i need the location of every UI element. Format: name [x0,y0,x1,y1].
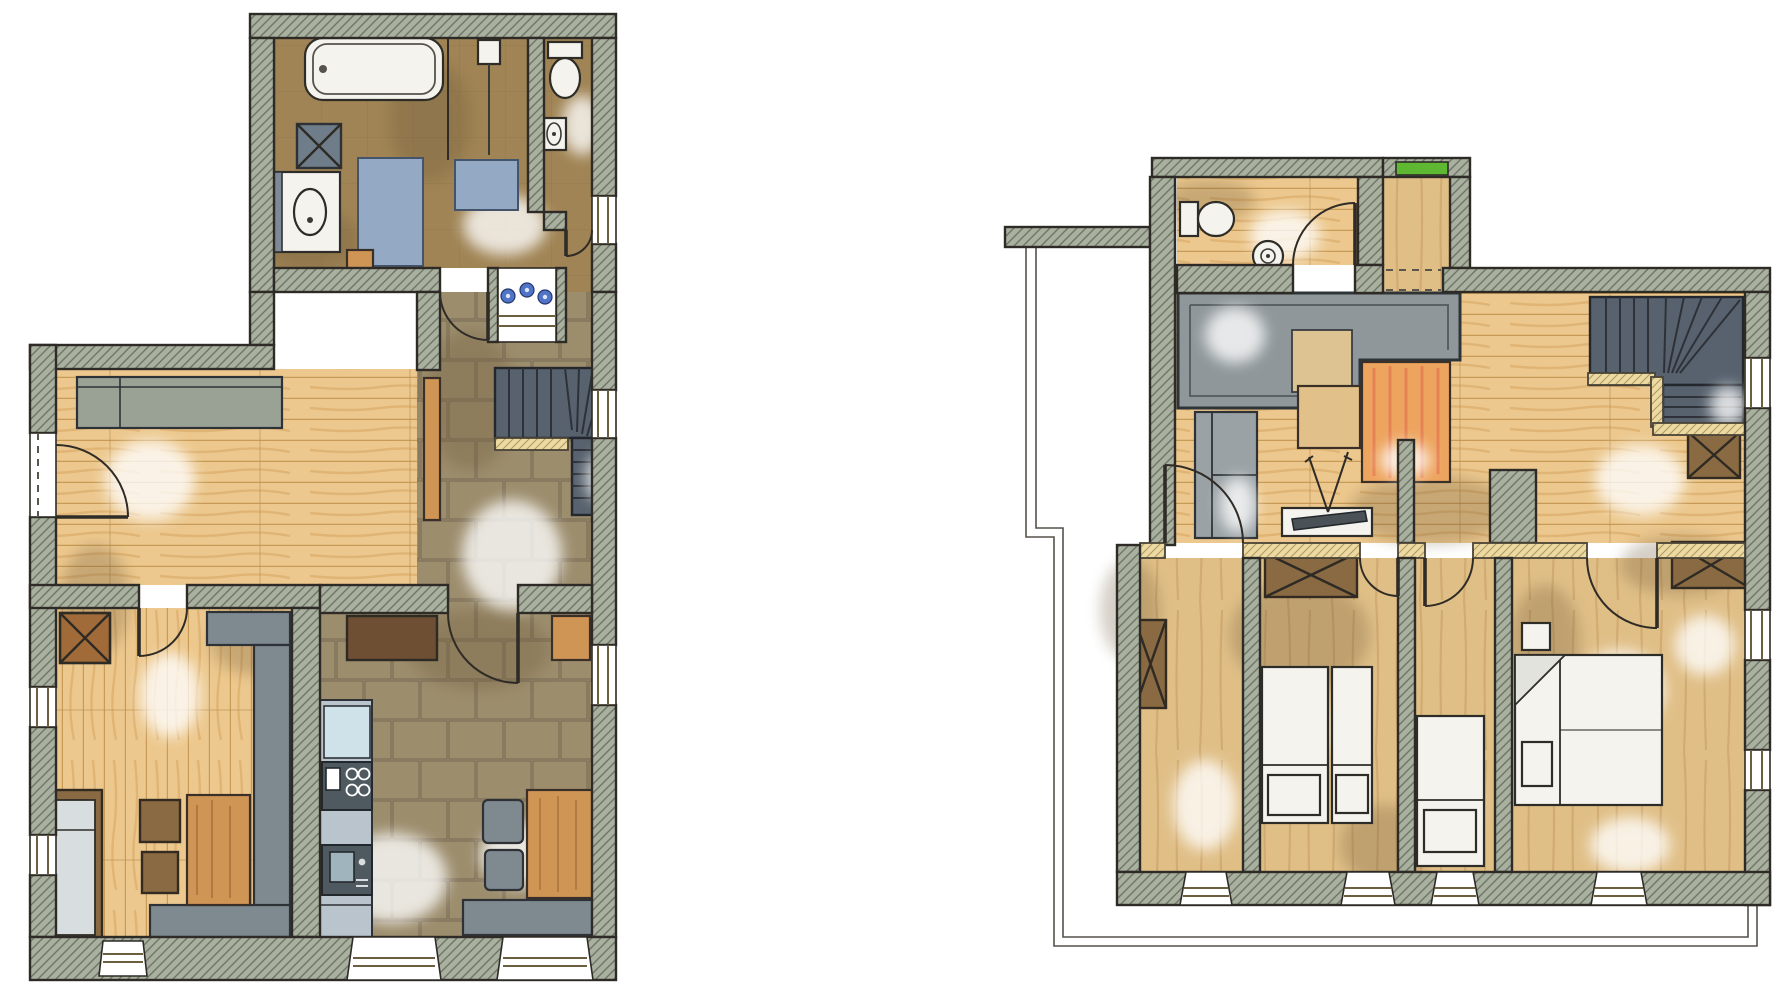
splayed-window [99,941,147,976]
toilet [548,42,582,98]
nightstand [1522,623,1550,650]
stube-stool [142,852,178,893]
kitchen-cabinet [347,616,437,660]
wall-bench [77,377,282,428]
kitchen-counter [320,700,372,937]
corridor-floor [1383,177,1450,293]
wardrobe [1688,432,1740,478]
splayed-window [1180,872,1232,905]
hand-basin [544,118,566,150]
tiled-stove [60,613,110,663]
refrigerator [552,616,590,660]
stube-table [187,795,250,905]
cooktop-stove [322,762,372,810]
twin-bed [1332,667,1372,823]
floor-plan-sheet [0,0,1787,994]
window [30,687,56,727]
kitchen-sink [322,845,372,895]
eaves-wall-stub [1005,227,1150,247]
dining-bench [463,900,595,935]
splayed-window [1591,872,1647,905]
entrance-opening [30,433,56,517]
window [592,196,616,244]
green-skylight [1396,162,1448,175]
dining-chair [485,850,523,890]
stube-stool [140,800,180,842]
stube-bench-bottom [150,905,290,937]
splayed-window [497,937,593,980]
splayed-window [347,937,441,980]
bathtub [305,38,443,100]
toilet [1180,202,1234,236]
plan-ground-floor [30,14,616,980]
window [1745,750,1770,790]
side-table [1298,386,1360,448]
vanity-washbasin [268,172,340,252]
stube-bench-right [254,645,290,937]
single-bed [1417,716,1484,866]
splayed-window [1341,872,1395,905]
splayed-window [1431,872,1479,905]
window [30,835,56,875]
wardrobe [1265,553,1357,597]
plan-upper-floor [1005,158,1770,946]
stube-bench-top [207,612,290,645]
window [1745,610,1770,660]
window [592,645,616,705]
dining-table [527,790,595,898]
open-door-leaf [424,378,440,520]
window [592,390,616,438]
flower-window [498,268,556,342]
floor-plan-drawing [0,0,1787,994]
dining-chair [483,800,523,843]
nightstand [1522,742,1552,786]
bath-mat-small [455,160,518,210]
window [1745,358,1770,408]
twin-bed [1262,667,1328,823]
washing-machine [297,124,341,168]
